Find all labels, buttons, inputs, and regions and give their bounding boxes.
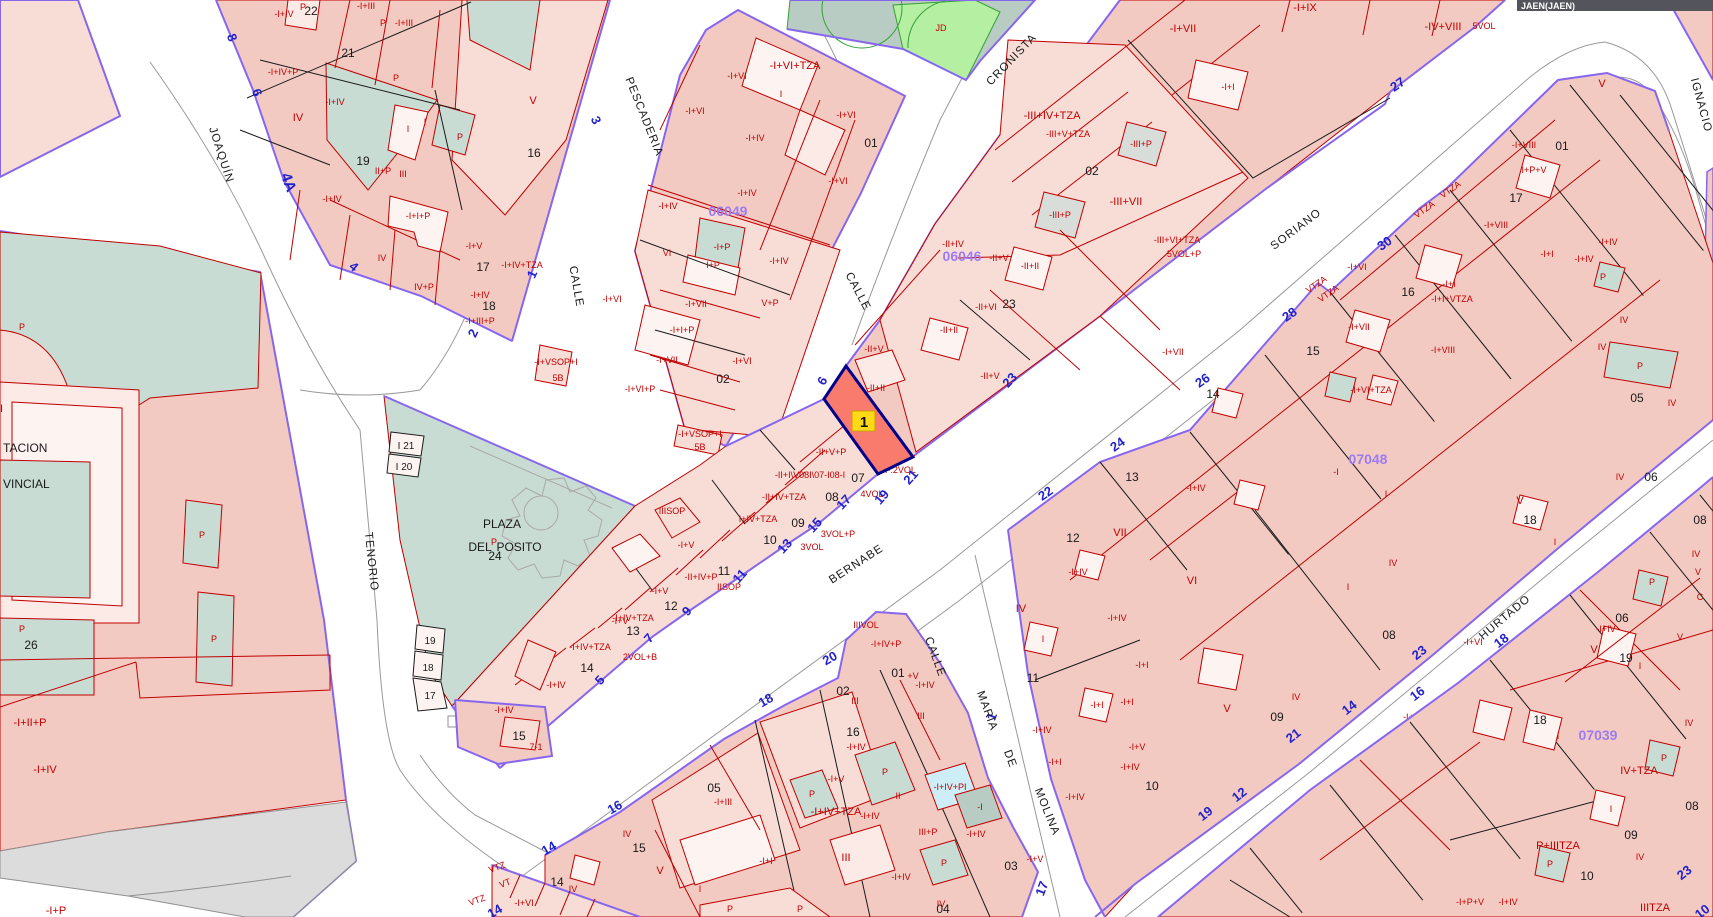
svg-text:-I: -I	[977, 802, 983, 812]
svg-text:P: P	[300, 2, 306, 12]
svg-text:5VOL: 5VOL	[1472, 21, 1495, 31]
svg-text:-I+III+P: -I+III+P	[465, 316, 495, 326]
svg-text:-III+V+TZA: -III+V+TZA	[1046, 129, 1090, 139]
svg-text:-I+VII: -I+VII	[656, 355, 678, 365]
svg-text:14: 14	[1206, 387, 1220, 401]
svg-text:-II+II: -II+II	[867, 383, 885, 393]
svg-text:IV: IV	[1016, 603, 1027, 615]
svg-text:15: 15	[632, 841, 646, 855]
svg-text:-I+V: -I+V	[1129, 742, 1146, 752]
svg-text:22: 22	[304, 4, 318, 18]
svg-text:II+P: II+P	[375, 166, 391, 176]
svg-text:-I+IV: -I+IV	[769, 256, 788, 266]
svg-text:-I+VI: -I+VI	[685, 106, 704, 116]
svg-text:-I+VSOP+I: -I+VSOP+I	[678, 429, 722, 439]
svg-text:-I+IV: -I+IV	[1186, 483, 1205, 493]
svg-text:-I+I: -I+I	[1048, 757, 1061, 767]
svg-text:-I+VI+TZA: -I+VI+TZA	[1350, 385, 1392, 395]
svg-text:V: V	[1590, 644, 1598, 656]
svg-text:III: III	[841, 852, 850, 864]
svg-text:V: V	[1677, 632, 1683, 642]
svg-text:IV+P: IV+P	[414, 282, 434, 292]
svg-text:-I+I: -I+I	[1135, 660, 1148, 670]
svg-text:-II+II: -II+II	[940, 325, 958, 335]
svg-text:09: 09	[791, 516, 805, 530]
svg-text:14: 14	[580, 661, 594, 675]
svg-text:05: 05	[707, 781, 721, 795]
svg-text:III: III	[851, 696, 859, 706]
svg-text:19: 19	[424, 636, 436, 647]
svg-text:P: P	[1547, 859, 1553, 869]
svg-text:23: 23	[1002, 297, 1016, 311]
svg-text:IV: IV	[1389, 558, 1398, 568]
svg-text:04: 04	[936, 902, 950, 916]
svg-text:I+P: I+P	[706, 260, 720, 270]
svg-text:I: I	[699, 884, 702, 894]
svg-text:I: I	[780, 89, 783, 99]
svg-text:-I+VI: -I+VI	[602, 294, 621, 304]
svg-text:P: P	[380, 18, 386, 28]
svg-text:-I+IV: -I+IV	[546, 680, 565, 690]
svg-text:06049: 06049	[709, 203, 748, 219]
svg-text:-I+III: -I+III	[357, 1, 375, 11]
svg-text:-I+IV: -I+IV	[274, 9, 293, 19]
svg-text:IV: IV	[293, 112, 304, 124]
svg-text:3VOL+P: 3VOL+P	[821, 529, 855, 539]
svg-text:-I+V: -I+V	[466, 241, 483, 251]
svg-text:-IV+VIII: -IV+VIII	[1425, 21, 1462, 33]
svg-text:-I+VII: -I+VII	[1162, 347, 1184, 357]
svg-text:IIISOP: IIISOP	[659, 506, 686, 516]
svg-text:01: 01	[891, 666, 905, 680]
svg-text:-I+IV: -I+IV	[1498, 897, 1517, 907]
svg-text:IV: IV	[1598, 342, 1607, 352]
svg-text:-I+P: -I+P	[714, 242, 731, 252]
svg-text:I+IV+TZA: I+IV+TZA	[739, 514, 778, 524]
svg-text:02: 02	[1085, 164, 1099, 178]
svg-text:08: 08	[1685, 799, 1699, 813]
svg-text:06: 06	[1615, 611, 1629, 625]
svg-text:-I+I+P: -I+I+P	[670, 325, 695, 335]
svg-text:-I+VIII: -I+VIII	[1431, 345, 1455, 355]
svg-text:-III+P: -III+P	[1130, 139, 1152, 149]
svg-text:-I+IV: -I+IV	[1596, 624, 1615, 634]
svg-text:-I+IV: -I+IV	[33, 764, 57, 776]
svg-text:-I+VI: -I+VI	[514, 898, 533, 908]
svg-text:-I+I: -I+I	[759, 856, 772, 866]
svg-text:03: 03	[1004, 859, 1018, 873]
svg-text:07048: 07048	[1349, 451, 1388, 467]
svg-text:II: II	[0, 403, 3, 415]
svg-text:-I+IV: -I+IV	[891, 872, 910, 882]
svg-text:-I+IV+TZA: -I+IV+TZA	[811, 806, 862, 818]
svg-text:17: 17	[476, 260, 490, 274]
svg-text:-I+VIII: -I+VIII	[1484, 220, 1508, 230]
svg-text:-I+I: -I+I	[1442, 279, 1455, 289]
svg-text:5B: 5B	[552, 373, 563, 383]
svg-text:-I+VI: -I+VI	[836, 110, 855, 120]
svg-text:-I+III: -I+III	[714, 797, 732, 807]
svg-text:P: P	[1600, 272, 1606, 282]
svg-text:07039: 07039	[1579, 727, 1618, 743]
svg-text:-II+IV+TZA: -II+IV+TZA	[762, 492, 806, 502]
svg-text:V: V	[656, 865, 664, 877]
svg-text:I+P+V: I+P+V	[1521, 165, 1546, 175]
svg-text:V: V	[529, 95, 537, 107]
svg-text:5B: 5B	[694, 442, 705, 452]
svg-text:18: 18	[1523, 513, 1537, 527]
svg-text:P: P	[19, 624, 25, 634]
svg-text:VII: VII	[1113, 527, 1126, 539]
svg-text:-I+IV: -I+IV	[745, 133, 764, 143]
svg-text:26: 26	[24, 638, 38, 652]
svg-text:02: 02	[716, 372, 730, 386]
svg-text:P: P	[941, 858, 947, 868]
svg-text:-I+IV: -I+IV	[1068, 567, 1087, 577]
svg-text:IV: IV	[378, 253, 387, 263]
svg-text:I: I	[1042, 634, 1045, 644]
svg-text:I 20: I 20	[396, 462, 413, 473]
svg-text:-I+VI: -I+VI	[828, 176, 847, 186]
svg-text:-I+VI: -I+VI	[1463, 637, 1482, 647]
svg-text:-II+V+P: -II+V+P	[816, 447, 847, 457]
svg-text:P: P	[393, 73, 399, 83]
svg-text:15: 15	[512, 729, 526, 743]
svg-text:IV: IV	[623, 829, 632, 839]
svg-text:P: P	[457, 132, 463, 142]
svg-text:-I+IV: -I+IV	[325, 97, 344, 107]
svg-text:1: 1	[860, 414, 868, 431]
svg-text:P: P	[1649, 577, 1655, 587]
svg-text:II: II	[895, 791, 900, 801]
svg-text:13: 13	[1125, 470, 1139, 484]
svg-text:19: 19	[356, 154, 370, 168]
svg-text:18: 18	[1533, 713, 1547, 727]
svg-text:-I+I+VTZA: -I+I+VTZA	[1431, 294, 1473, 304]
svg-text:09: 09	[1624, 828, 1638, 842]
svg-text:I 21: I 21	[398, 441, 415, 452]
svg-text:-I+I: -I+I	[1120, 697, 1133, 707]
svg-text:-I+I: -I+I	[1221, 82, 1234, 92]
svg-text:17: 17	[424, 691, 436, 702]
svg-text:JAEN(JAEN): JAEN(JAEN)	[1521, 1, 1575, 11]
svg-text:V: V	[1598, 78, 1606, 90]
svg-text:-I+IV: -I+IV	[966, 829, 985, 839]
svg-text:-I+VSOP+I: -I+VSOP+I	[534, 357, 578, 367]
svg-text:-I+IV: -I+IV	[494, 705, 513, 715]
svg-text:I: I	[1385, 489, 1388, 499]
svg-text:P: P	[809, 789, 815, 799]
svg-text:18: 18	[482, 299, 496, 313]
svg-text:-III+IV+TZA: -III+IV+TZA	[1024, 110, 1082, 122]
svg-text:13: 13	[626, 624, 640, 638]
svg-text:P: P	[1661, 753, 1667, 763]
svg-text:V: V	[1516, 495, 1524, 507]
svg-text:10: 10	[1580, 869, 1594, 883]
svg-text:-I+III: -I+III	[395, 18, 413, 28]
svg-text:21: 21	[341, 46, 355, 60]
svg-text:-I+IV: -I+IV	[1574, 254, 1593, 264]
svg-text:-II+II: -II+II	[1021, 261, 1039, 271]
svg-text:-I+VI: -I+VI	[727, 71, 746, 81]
svg-text:JD: JD	[936, 23, 948, 33]
svg-text:P: P	[1637, 361, 1643, 371]
svg-text:17: 17	[1509, 191, 1523, 205]
svg-text:V: V	[1223, 703, 1231, 715]
svg-text:-I+IV: -I+IV	[1107, 613, 1126, 623]
svg-text:PLAZA: PLAZA	[483, 517, 521, 531]
svg-text:5VOL+P: 5VOL+P	[1167, 249, 1201, 259]
svg-text:10: 10	[1145, 779, 1159, 793]
svg-text:-I+IV: -I+IV	[1120, 762, 1139, 772]
svg-text:08: 08	[1693, 513, 1707, 527]
svg-text:-I+IV: -I+IV	[846, 742, 865, 752]
svg-text:V+P: V+P	[761, 298, 778, 308]
svg-text:I: I	[1610, 804, 1613, 814]
svg-text:09: 09	[1270, 710, 1284, 724]
svg-text:P: P	[199, 530, 205, 540]
svg-text:C: C	[1697, 592, 1704, 602]
svg-text:P: P	[882, 767, 888, 777]
svg-text:-I+IV+TZA: -I+IV+TZA	[612, 613, 654, 623]
svg-text:01: 01	[1555, 139, 1569, 153]
svg-text:-II+V: -II+V	[989, 253, 1008, 263]
svg-text:-I+VI+TZA: -I+VI+TZA	[770, 60, 821, 72]
svg-text:I: I	[407, 124, 410, 134]
svg-text:02: 02	[836, 684, 850, 698]
svg-text:-I+I+P: -I+I+P	[406, 211, 431, 221]
svg-text:-II+IV: -II+IV	[942, 239, 964, 249]
svg-text:-III+P: -III+P	[1049, 210, 1071, 220]
svg-text:P: P	[19, 322, 25, 332]
svg-text:P: P	[491, 537, 497, 547]
svg-text:-I+IV: -I+IV	[470, 290, 489, 300]
svg-text:-II+IV+P: -II+IV+P	[684, 572, 717, 582]
svg-text:P: P	[727, 904, 733, 914]
svg-text:-I+P: -I+P	[46, 905, 66, 917]
svg-text:IIIVOL: IIIVOL	[853, 620, 879, 630]
svg-text:-I+IV+P: -I+IV+P	[268, 67, 299, 77]
svg-text:19: 19	[1619, 651, 1633, 665]
svg-text:-III+VI+TZA: -III+VI+TZA	[1154, 235, 1201, 245]
svg-text:P: P	[797, 904, 803, 914]
svg-text:-I+V: -I+V	[1027, 854, 1044, 864]
svg-text:-I+V: -I+V	[678, 540, 695, 550]
svg-text:06046: 06046	[943, 248, 982, 264]
svg-text:01: 01	[864, 136, 878, 150]
svg-text:TACION: TACION	[3, 441, 47, 455]
svg-text:IV: IV	[1685, 718, 1694, 728]
svg-text:3VOL: 3VOL	[800, 542, 823, 552]
svg-text:-I+VI: -I+VI	[1347, 262, 1366, 272]
svg-text:-II+V: -II+V	[864, 344, 883, 354]
svg-text:-II+I\V08I\07-I08-I: -II+I\V08I\07-I08-I	[775, 470, 845, 480]
svg-text:16: 16	[527, 146, 541, 160]
svg-text:POSITO: POSITO	[496, 540, 541, 554]
svg-text:2VOL+B: 2VOL+B	[623, 652, 657, 662]
svg-text:-I+II+P: -I+II+P	[13, 717, 46, 729]
svg-text:IV: IV	[1616, 472, 1625, 482]
svg-text:-III+VII: -III+VII	[1110, 196, 1143, 208]
svg-text:-I+IV: -I+IV	[322, 194, 341, 204]
svg-text:I: I	[1347, 582, 1350, 592]
svg-text:11: 11	[1027, 671, 1040, 685]
svg-text:-II+V: -II+V	[980, 371, 999, 381]
svg-text:-I+VII: -I+VII	[1348, 322, 1370, 332]
svg-text:-I+IV: -I+IV	[737, 188, 756, 198]
svg-text:I: I	[424, 117, 427, 127]
svg-text:-I+IV: -I+IV	[915, 680, 934, 690]
svg-text:06: 06	[1644, 470, 1658, 484]
svg-text:VINCIAL: VINCIAL	[3, 477, 50, 491]
svg-text:-I+VI+P: -I+VI+P	[625, 384, 656, 394]
svg-text:I: I	[1557, 731, 1560, 741]
svg-text:I: I	[1639, 661, 1642, 671]
svg-text:-I+I: -I+I	[1540, 249, 1553, 259]
svg-text:-I+V: -I+V	[652, 586, 669, 596]
svg-text:P+IIITZA: P+IIITZA	[1536, 840, 1580, 852]
svg-text:-I+IV+TZA: -I+IV+TZA	[501, 260, 543, 270]
svg-text:12: 12	[664, 599, 678, 613]
svg-text:-I+VII: -I+VII	[685, 299, 707, 309]
svg-text:12: 12	[1066, 531, 1080, 545]
svg-text:IV: IV	[1292, 692, 1301, 702]
svg-text:-I+IV: -I+IV	[1065, 792, 1084, 802]
svg-text:-I+VI: -I+VI	[732, 356, 751, 366]
svg-text:7-1: 7-1	[529, 742, 542, 752]
svg-text:IV: IV	[1692, 549, 1701, 559]
svg-text:-II+VI: -II+VI	[975, 302, 997, 312]
svg-text:07: 07	[851, 471, 865, 485]
svg-text:-I+P+V: -I+P+V	[1456, 897, 1484, 907]
svg-text:VI: VI	[1187, 575, 1197, 587]
svg-text:-I+IV+P: -I+IV+P	[871, 639, 902, 649]
svg-text:-I+IV: -I+IV	[658, 201, 677, 211]
svg-text:IIITZA: IIITZA	[1640, 902, 1671, 914]
svg-text:V: V	[1695, 567, 1701, 577]
svg-text:15: 15	[1306, 344, 1320, 358]
svg-text:IV: IV	[1620, 315, 1629, 325]
svg-text:05: 05	[1630, 391, 1644, 405]
svg-text:-I+IV: -I+IV	[860, 811, 879, 821]
svg-text:-I+IV: -I+IV	[1598, 237, 1617, 247]
svg-text:-I+VII: -I+VII	[1170, 23, 1197, 35]
svg-text:I: I	[1554, 537, 1557, 547]
svg-text:18: 18	[422, 663, 434, 674]
svg-text:-I+IX: -I+IX	[1293, 2, 1317, 14]
svg-text:16: 16	[1401, 285, 1415, 299]
svg-text:-I+V: -I+V	[828, 774, 845, 784]
svg-text:III: III	[399, 169, 407, 179]
svg-text:24: 24	[488, 549, 502, 563]
svg-text:P: P	[211, 634, 217, 644]
svg-text:-I+I: -I+I	[1090, 700, 1103, 710]
svg-text:IV: IV	[1636, 852, 1645, 862]
svg-text:III+P: III+P	[919, 827, 938, 837]
svg-text:16: 16	[846, 725, 860, 739]
svg-text:IV+TZA: IV+TZA	[1620, 765, 1658, 777]
svg-text:-I+IV+TZA: -I+IV+TZA	[569, 642, 611, 652]
svg-text:-I+VIII: -I+VIII	[1512, 140, 1536, 150]
svg-text:08: 08	[1382, 628, 1396, 642]
svg-text:VI: VI	[663, 248, 672, 258]
svg-text:-I: -I	[1333, 467, 1339, 477]
svg-text:-I+IV+PI: -I+IV+PI	[933, 782, 966, 792]
svg-text:-I+IV: -I+IV	[1032, 725, 1051, 735]
svg-text:IV: IV	[1668, 398, 1677, 408]
